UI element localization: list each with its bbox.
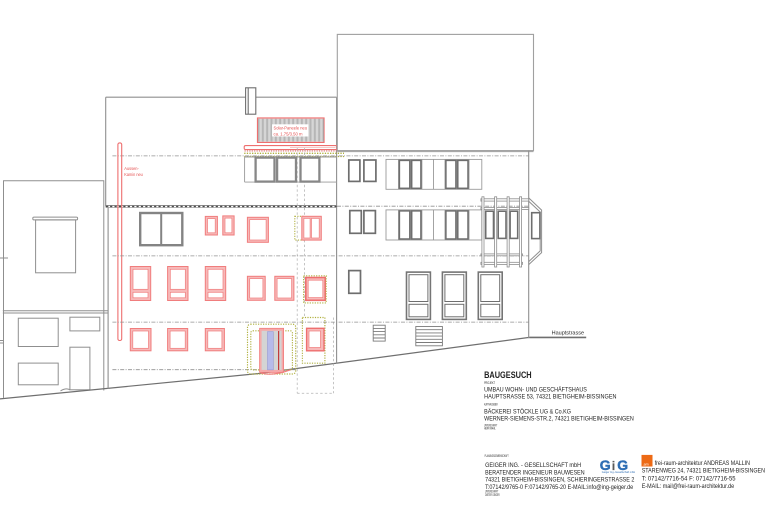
svg-text:GEIGER ING. - GESELLSCHAFT m: GEIGER ING. - GESELLSCHAFT mbH	[485, 463, 581, 469]
svg-text:PROJEKT: PROJEKT	[484, 381, 495, 385]
svg-text:STARENWEG 24, 74321 BIETIGHEIM: STARENWEG 24, 74321 BIETIGHEIM-BISSINGEN	[642, 469, 765, 475]
svg-text:T: 07142/7716-54 F: 07142/: T: 07142/7716-54 F: 07142/7716-55	[642, 476, 736, 482]
svg-text:Hauptstrasse: Hauptstrasse	[552, 330, 585, 336]
svg-text:Solar-Paneele neu: Solar-Paneele neu	[274, 125, 308, 131]
svg-text:DIETER GEIGER: DIETER GEIGER	[485, 493, 500, 497]
svg-text:WERNER-SIEMENS-STR.2, 74321 BI: WERNER-SIEMENS-STR.2, 74321 BIETIGHEIM-B…	[484, 417, 634, 423]
svg-text:BERATENDER INGENIEUR BAUWESEN: BERATENDER INGENIEUR BAUWESEN	[485, 471, 584, 477]
svg-text:T:07142/9765-0 F:07142/9765-2: T:07142/9765-0 F:07142/9765-20 E-MAIL:in…	[485, 485, 634, 491]
svg-text:E-MAIL: mail@frei-raum-archite: E-MAIL: mail@frei-raum-architektur.de	[642, 484, 735, 490]
svg-text:74321 BIETIGHEIM-BISSINGEN, SC: 74321 BIETIGHEIM-BISSINGEN, SCHIERINGERS…	[485, 478, 635, 484]
svg-text:AUFTRAGGEBER: AUFTRAGGEBER	[484, 403, 498, 407]
svg-text:BÄCKEREI STÖCKLE UG & Co.KG: BÄCKEREI STÖCKLE UG & Co.KG	[484, 408, 571, 415]
svg-text:.am: .am	[643, 462, 649, 466]
svg-text:PLANUNGSGEMEINSCHAFT: PLANUNGSGEMEINSCHAFT	[485, 454, 509, 458]
svg-text:UMBAU WOHN- UND GESCHÄFTSHAUS: UMBAU WOHN- UND GESCHÄFTSHAUS	[484, 386, 587, 393]
svg-text:Aussen-: Aussen-	[124, 166, 139, 171]
svg-text:Geiger Ing.-Gesellschaft mbH: Geiger Ing.-Gesellschaft mbH	[602, 470, 635, 474]
svg-text:Kamin neu: Kamin neu	[124, 172, 143, 177]
svg-text:BAUGESUCH: BAUGESUCH	[484, 370, 532, 380]
svg-text:frei-raum-architektur ANDREAS: frei-raum-architektur ANDREAS MALLIN	[655, 461, 750, 467]
svg-text:HAUPTSRASSE 53, 74321 BIETIGHE: HAUPTSRASSE 53, 74321 BIETIGHEIM-BISSING…	[484, 395, 616, 401]
svg-text:ca. 1.75/3.50 m: ca. 1.75/3.50 m	[274, 131, 303, 137]
svg-text:HERR WAHL: HERR WAHL	[484, 427, 496, 431]
